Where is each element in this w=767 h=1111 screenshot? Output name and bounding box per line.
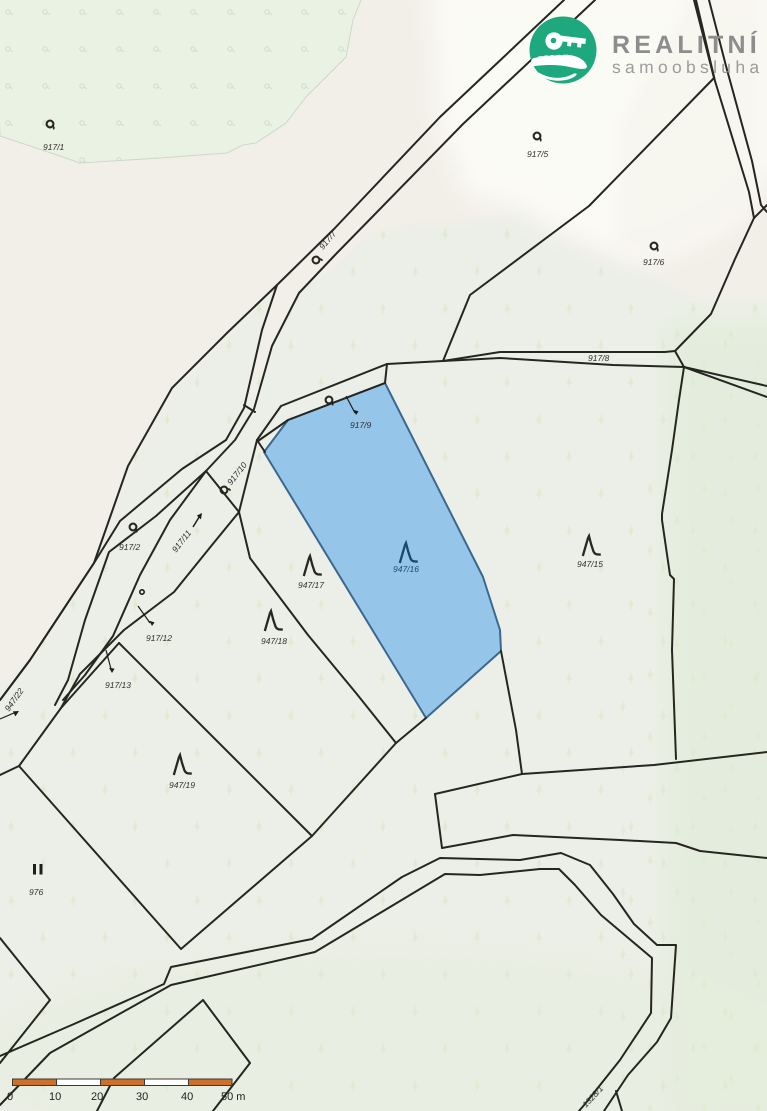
svg-text:976: 976 xyxy=(29,887,43,897)
svg-text:40: 40 xyxy=(181,1091,193,1103)
svg-text:947/16: 947/16 xyxy=(393,564,419,574)
svg-text:917/9: 917/9 xyxy=(350,420,372,430)
svg-text:917/8: 917/8 xyxy=(588,353,610,363)
svg-text:20: 20 xyxy=(91,1091,103,1103)
svg-text:947/15: 947/15 xyxy=(577,559,603,569)
svg-text:30: 30 xyxy=(136,1091,148,1103)
svg-text:917/5: 917/5 xyxy=(527,149,549,159)
svg-text:917/2: 917/2 xyxy=(119,542,141,552)
svg-text:10: 10 xyxy=(49,1091,61,1103)
svg-text:917/13: 917/13 xyxy=(105,680,131,690)
svg-text:947/17: 947/17 xyxy=(298,580,324,590)
svg-text:917/1: 917/1 xyxy=(43,142,65,152)
svg-text:947/18: 947/18 xyxy=(261,636,287,646)
svg-text:samoobsluha: samoobsluha xyxy=(612,57,763,77)
svg-text:917/12: 917/12 xyxy=(146,633,172,643)
svg-text:50 m: 50 m xyxy=(221,1091,245,1103)
svg-text:917/6: 917/6 xyxy=(643,257,665,267)
svg-text:0: 0 xyxy=(7,1091,13,1103)
svg-text:REALITNÍ: REALITNÍ xyxy=(612,30,761,59)
svg-text:947/19: 947/19 xyxy=(169,780,195,790)
